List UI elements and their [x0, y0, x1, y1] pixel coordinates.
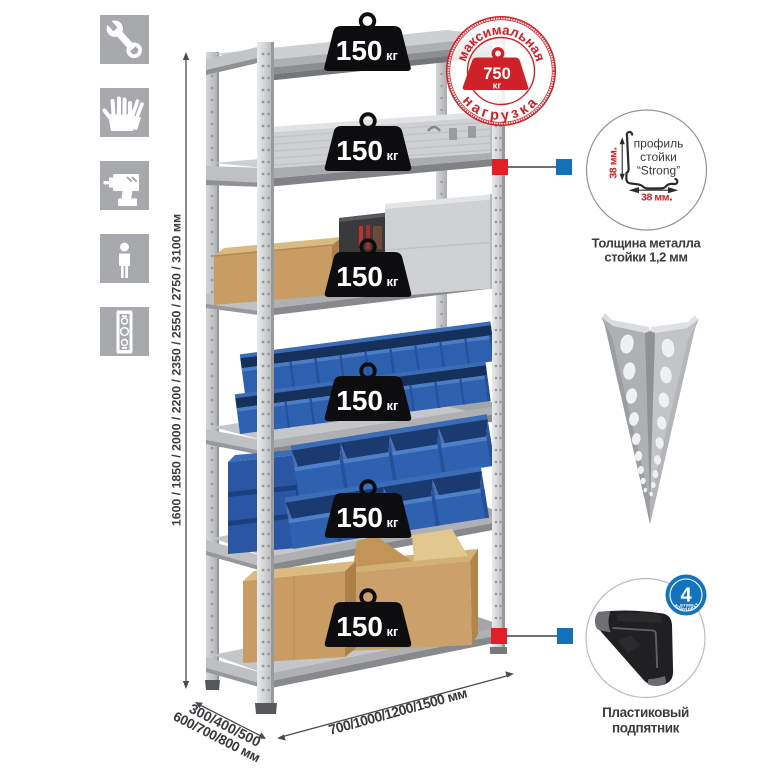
- svg-text:стойки: стойки: [640, 150, 677, 164]
- svg-text:38 мм.: 38 мм.: [605, 147, 620, 178]
- svg-text:150: 150: [336, 502, 383, 533]
- svg-text:профиль: профиль: [634, 137, 684, 151]
- svg-text:150: 150: [336, 261, 383, 292]
- svg-text:150: 150: [336, 135, 383, 166]
- svg-text:кг: кг: [387, 148, 400, 163]
- svg-text:кг: кг: [387, 274, 400, 289]
- svg-text:38 мм.: 38 мм.: [641, 189, 672, 204]
- svg-text:кг: кг: [387, 515, 400, 530]
- svg-text:стойки 1,2 мм: стойки 1,2 мм: [604, 250, 687, 265]
- svg-text:кг: кг: [387, 398, 400, 413]
- svg-text:подпятник: подпятник: [612, 721, 680, 736]
- svg-text:кг: кг: [387, 624, 400, 639]
- svg-text:Толщина металла: Толщина металла: [592, 236, 702, 251]
- svg-text:150: 150: [336, 385, 383, 416]
- svg-text:кг: кг: [386, 48, 399, 63]
- svg-text:1600 / 1850 / 2000 / 2200 / 23: 1600 / 1850 / 2000 / 2200 / 2350 / 2550 …: [170, 214, 184, 526]
- svg-text:кг: кг: [493, 81, 502, 92]
- svg-text:Пластиковый: Пластиковый: [602, 705, 689, 720]
- svg-text:“Strong”: “Strong”: [637, 164, 680, 178]
- svg-text:150: 150: [336, 35, 383, 66]
- svg-text:150: 150: [336, 611, 383, 642]
